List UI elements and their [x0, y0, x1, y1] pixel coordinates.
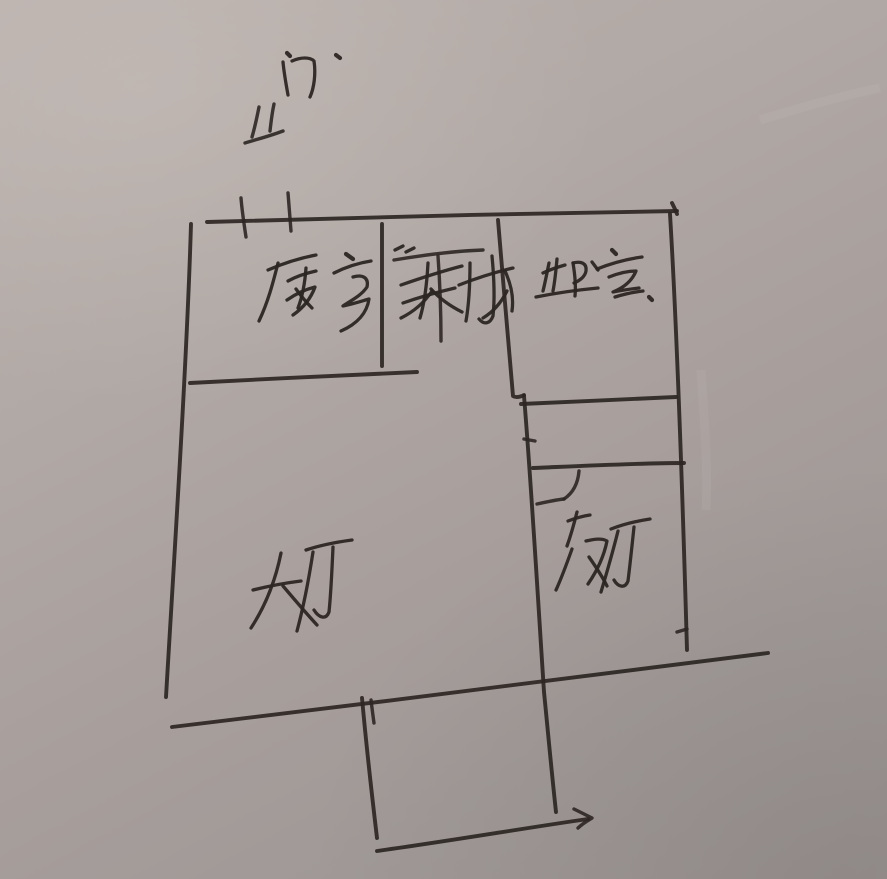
- script-stroke: [649, 297, 652, 300]
- label-hall-script: [251, 540, 352, 631]
- script-stroke: [612, 250, 616, 254]
- hall-dining-divider-wall: [524, 396, 556, 812]
- wall-top: [207, 211, 677, 222]
- script-stroke: [253, 581, 301, 590]
- script-stroke: [287, 53, 290, 56]
- label-dining-script: [556, 512, 650, 592]
- script-stroke: [401, 266, 462, 285]
- script-stroke: [567, 512, 577, 546]
- script-stroke: [466, 263, 470, 321]
- script-stroke: [568, 515, 590, 521]
- kitchen-bottom-wall: [190, 372, 417, 383]
- script-stroke: [314, 547, 333, 617]
- script-stroke: [536, 288, 598, 297]
- wall-left: [166, 224, 191, 697]
- script-stroke: [597, 257, 642, 269]
- entry-door-tick-left: [241, 198, 246, 237]
- script-stroke: [420, 263, 428, 318]
- entry-direction-mark: [245, 104, 283, 143]
- door-swing-arc: [564, 471, 579, 499]
- script-stroke: [406, 248, 414, 252]
- script-stroke: [341, 276, 369, 331]
- script-stroke: [611, 519, 650, 529]
- door-and-stair-marks: [241, 104, 579, 723]
- wall-bottom: [172, 653, 768, 727]
- script-stroke: [553, 259, 557, 291]
- hallway-wall-tick: [524, 439, 535, 441]
- script-stroke: [334, 261, 371, 273]
- script-stroke: [543, 263, 549, 291]
- paper-crease: [701, 370, 707, 510]
- script-stroke: [288, 271, 316, 281]
- bedroom-bottom-wall: [521, 397, 676, 404]
- entry-mark-stroke: [252, 107, 259, 137]
- script-stroke: [403, 288, 455, 303]
- script-stroke: [395, 246, 403, 250]
- label-bedroom-script: [536, 250, 652, 300]
- label-kitchen-script: [259, 254, 371, 331]
- script-stroke: [346, 254, 353, 259]
- wall-right: [670, 214, 687, 650]
- paper-crease: [760, 88, 880, 120]
- hallway-wall: [533, 463, 684, 468]
- porch-bottom-wall: [377, 819, 588, 851]
- script-stroke: [259, 263, 278, 321]
- script-stroke: [306, 540, 352, 550]
- entry-door-tick-right: [288, 193, 291, 231]
- entry-mark-stroke: [270, 104, 274, 131]
- script-stroke: [609, 271, 639, 292]
- floorplan-drawing: [0, 0, 887, 879]
- script-stroke: [336, 55, 340, 58]
- floorplan-photo: 门 厨房 楼梯 卧室 大厅 饭厅: [0, 0, 887, 879]
- script-stroke: [283, 62, 288, 95]
- script-stroke: [556, 549, 572, 590]
- door-leaf-stub: [537, 499, 564, 504]
- label-door-script: [283, 53, 340, 97]
- script-stroke: [292, 58, 315, 97]
